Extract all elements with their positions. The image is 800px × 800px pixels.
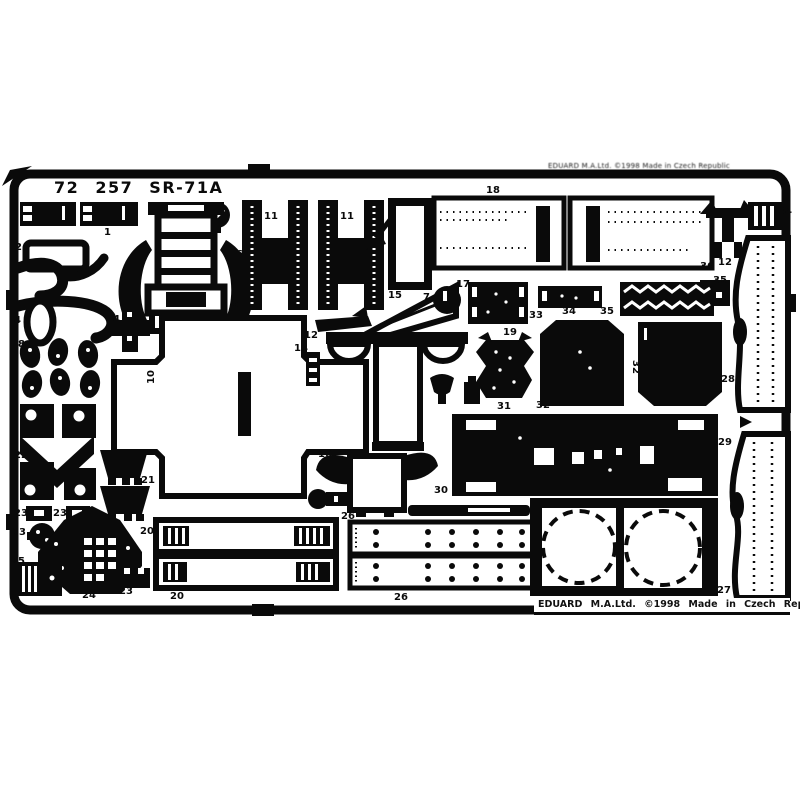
part-7-ball xyxy=(433,286,461,314)
edge-text-bottom: EDUARD M.A.Ltd. ©1998 Made in Czech Repu… xyxy=(538,599,800,610)
part-4-oval xyxy=(27,301,53,343)
part-6-seat-frame xyxy=(119,202,254,331)
part-11-ladder-b xyxy=(318,200,384,310)
small-fittings xyxy=(430,374,480,404)
part-32-square-b xyxy=(638,322,722,406)
part-33-bracket-plate xyxy=(468,282,528,324)
edge-text-top: EDUARD M.A.Ltd. ©1998 Made in Czech Repu… xyxy=(548,162,798,170)
part-32-square-a xyxy=(540,320,624,406)
part-22-chevron-plates xyxy=(20,404,96,500)
part-26-riveted-strips xyxy=(350,505,536,588)
part-23-clip-c xyxy=(118,568,150,588)
part-21-trapezoids xyxy=(100,450,150,521)
part-35-chevron-grid xyxy=(620,282,714,316)
part-34-striped-square xyxy=(748,202,782,230)
part-tall-frame xyxy=(392,202,428,286)
part-18-plates xyxy=(434,198,712,268)
part-27-circle-frames xyxy=(530,498,718,596)
parts-8-9-cushions xyxy=(17,336,102,399)
part-34-bracket-strip xyxy=(538,286,602,308)
part-25-striped-box xyxy=(18,562,62,596)
part-14-mini-ladder xyxy=(306,352,320,386)
part-11-ladder-a xyxy=(242,200,308,310)
part-key-shape xyxy=(308,489,348,509)
photoetch-sheet-scan: 72 257 SR-71A EDUARD M.A.Ltd. ©1998 Made… xyxy=(0,0,800,800)
part-28-wavy-strip xyxy=(733,238,788,410)
part-29-wavy-strip xyxy=(730,416,788,598)
part-30-panel xyxy=(452,414,718,496)
fret-artwork xyxy=(0,0,800,800)
part-1-plates xyxy=(20,202,138,226)
part-20-strips xyxy=(156,520,336,588)
sheet-title: 72 257 SR-71A xyxy=(54,178,223,197)
part-31-harness xyxy=(476,332,534,398)
